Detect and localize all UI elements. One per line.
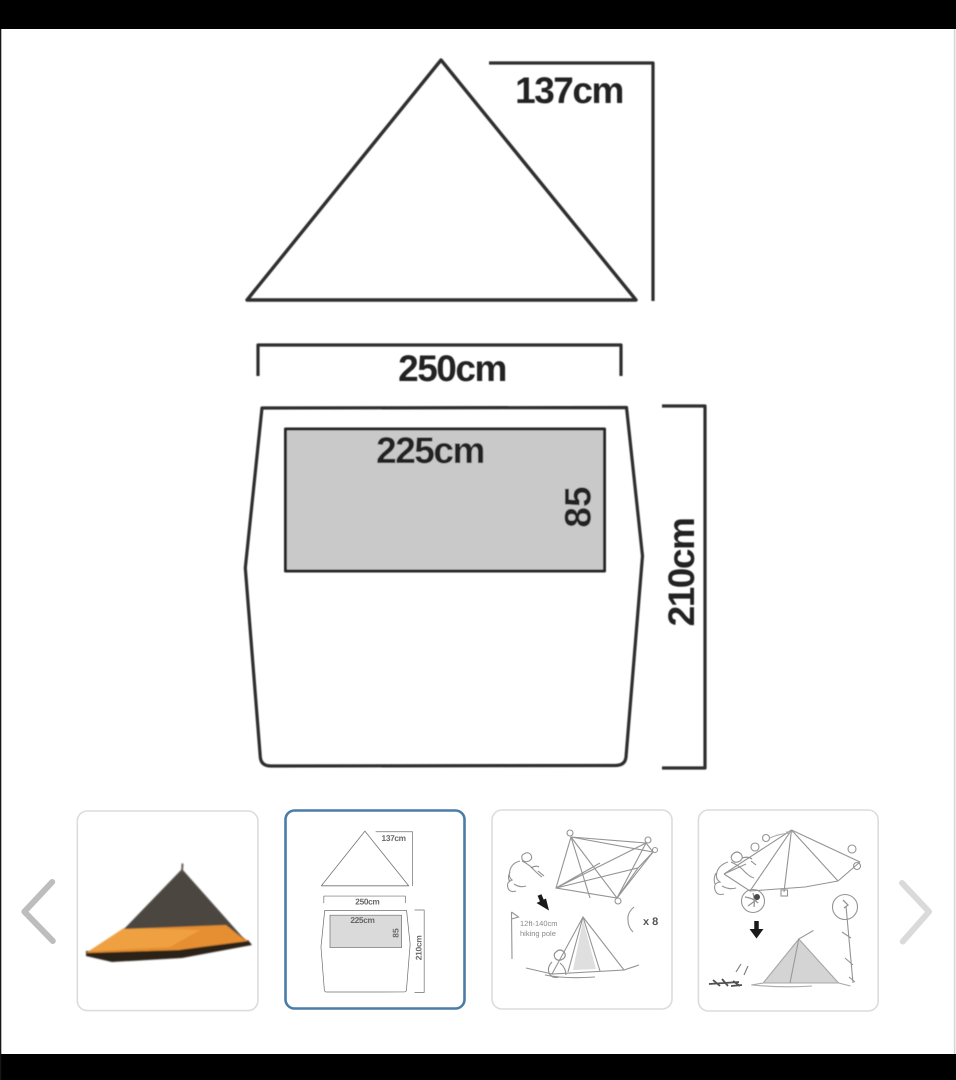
svg-text:137cm: 137cm [515,70,623,111]
svg-text:12ft-140cm: 12ft-140cm [520,919,558,928]
svg-text:x 8: x 8 [643,916,658,928]
svg-text:85: 85 [558,486,599,527]
svg-text:hiking pole: hiking pole [520,929,556,938]
svg-text:250cm: 250cm [398,348,506,389]
svg-text:210cm: 210cm [661,519,702,627]
svg-text:225cm: 225cm [376,430,484,471]
